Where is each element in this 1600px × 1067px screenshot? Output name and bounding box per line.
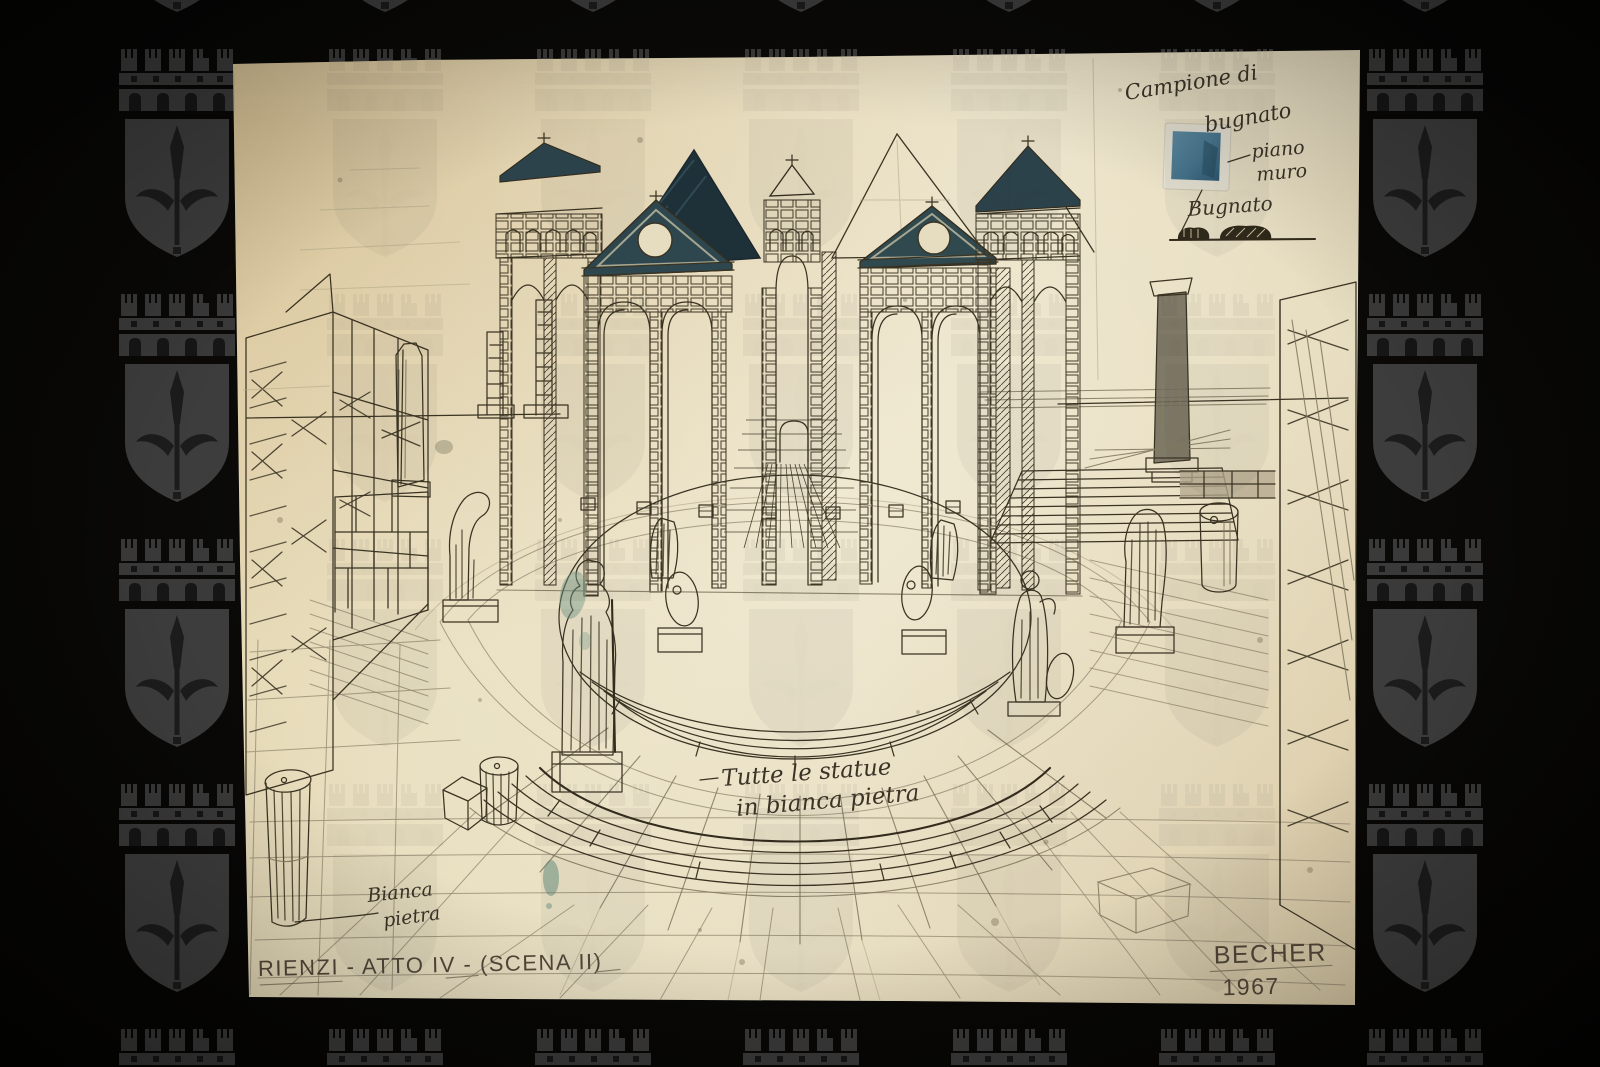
trieste-crest-icon xyxy=(327,784,443,992)
trieste-crest-icon xyxy=(1367,0,1483,12)
trieste-crest-icon xyxy=(951,784,1067,992)
trieste-crest-icon xyxy=(1159,0,1275,12)
trieste-crest-icon xyxy=(951,294,1067,502)
trieste-crest-icon xyxy=(743,294,859,502)
trieste-crest-icon xyxy=(535,0,651,12)
trieste-crest-icon xyxy=(327,539,443,747)
trieste-crest-icon xyxy=(535,49,651,257)
trieste-crest-icon xyxy=(327,49,443,257)
trieste-crest-icon xyxy=(1367,49,1483,257)
trieste-crest-icon xyxy=(119,1029,235,1067)
trieste-crest-icon xyxy=(327,1029,443,1067)
trieste-crest-icon xyxy=(119,294,235,502)
photo-backdrop: Campione di bugnato piano muro Bugnato T… xyxy=(0,0,1600,1067)
trieste-crest-icon xyxy=(535,1029,651,1067)
trieste-crest-icon xyxy=(1159,784,1275,992)
trieste-crest-icon xyxy=(1367,539,1483,747)
trieste-crest-icon xyxy=(951,1029,1067,1067)
trieste-crest-icon xyxy=(119,539,235,747)
trieste-crest-icon xyxy=(119,0,235,12)
trieste-crest-icon xyxy=(743,49,859,257)
trieste-crest-icon xyxy=(1159,49,1275,257)
trieste-crest-icon xyxy=(1367,1029,1483,1067)
trieste-crest-icon xyxy=(743,1029,859,1067)
trieste-crest-icon xyxy=(327,0,443,12)
trieste-crest-icon xyxy=(535,784,651,992)
trieste-crest-icon xyxy=(119,784,235,992)
trieste-crest-icon xyxy=(743,539,859,747)
trieste-crest-icon xyxy=(1159,539,1275,747)
trieste-crest-icon xyxy=(951,539,1067,747)
trieste-crest-icon xyxy=(743,784,859,992)
trieste-crest-icon xyxy=(1159,1029,1275,1067)
trieste-crest-icon xyxy=(119,49,235,257)
trieste-crest-icon xyxy=(535,539,651,747)
trieste-crest-icon xyxy=(951,0,1067,12)
trieste-crest-icon xyxy=(743,0,859,12)
trieste-crest-icon xyxy=(535,294,651,502)
trieste-crest-icon xyxy=(1367,784,1483,992)
trieste-crest-icon xyxy=(327,294,443,502)
trieste-crest-icon xyxy=(951,49,1067,257)
trieste-crest-icon xyxy=(1367,294,1483,502)
trieste-crest-icon xyxy=(1159,294,1275,502)
